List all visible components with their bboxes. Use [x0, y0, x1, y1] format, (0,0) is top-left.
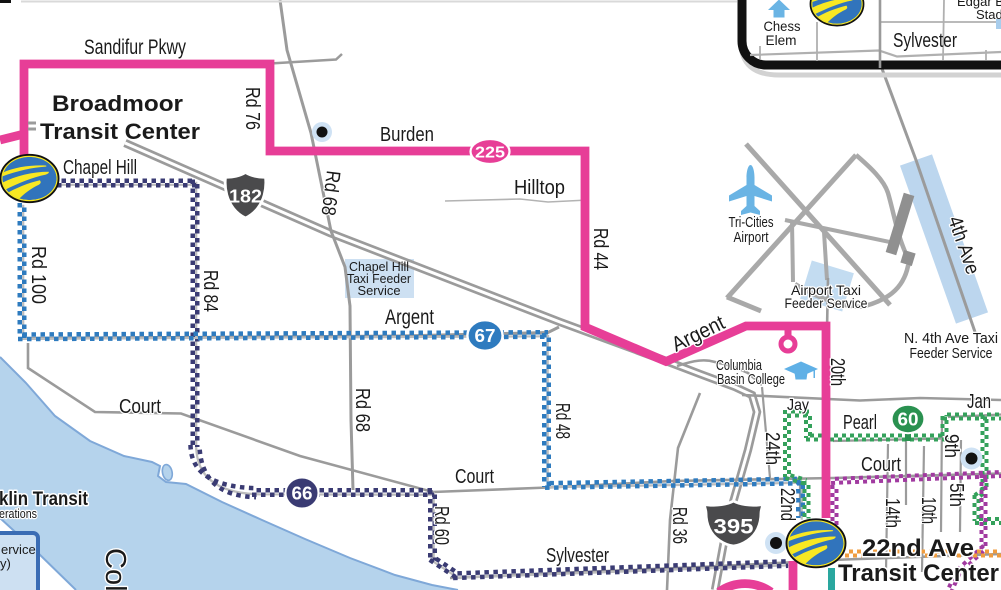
svg-text:Argent: Argent [385, 306, 434, 329]
svg-text:erations: erations [0, 506, 37, 521]
svg-text:Elem: Elem [766, 32, 797, 48]
svg-text:20th: 20th [826, 358, 848, 386]
svg-text:Burden: Burden [380, 124, 434, 146]
svg-text:22nd: 22nd [776, 488, 798, 521]
svg-text:Court: Court [119, 396, 161, 418]
svg-text:67: 67 [475, 326, 496, 346]
svg-text:Rd 76: Rd 76 [241, 87, 263, 130]
svg-text:225: 225 [475, 145, 505, 162]
svg-text:66: 66 [292, 484, 313, 504]
svg-text:Basin College: Basin College [717, 371, 785, 388]
svg-text:Broadmoor: Broadmoor [52, 91, 183, 116]
svg-text:Rd 44: Rd 44 [589, 228, 611, 270]
svg-text:y): y) [0, 556, 11, 571]
svg-text:Transit Center: Transit Center [838, 560, 999, 587]
svg-text:Transit Center: Transit Center [40, 119, 200, 144]
svg-text:5th: 5th [945, 483, 967, 507]
svg-text:Rd 68: Rd 68 [351, 388, 373, 432]
svg-text:Rd 60: Rd 60 [430, 506, 452, 545]
svg-text:Feeder Service: Feeder Service [785, 295, 868, 311]
svg-text:ervice: ervice [1, 542, 36, 557]
svg-text:Jay: Jay [787, 397, 809, 414]
svg-text:9th: 9th [940, 434, 962, 458]
svg-text:Columbia: Columbia [99, 548, 131, 590]
svg-text:Court: Court [455, 466, 494, 488]
svg-text:60: 60 [898, 410, 919, 430]
svg-text:Jan: Jan [967, 391, 991, 413]
svg-text:182: 182 [229, 187, 262, 207]
svg-text:22nd Ave: 22nd Ave [862, 535, 974, 562]
svg-text:Sylvester: Sylvester [893, 30, 957, 52]
svg-text:Rd 84: Rd 84 [199, 270, 221, 312]
svg-text:10th: 10th [917, 497, 939, 524]
svg-text:Sandifur Pkwy: Sandifur Pkwy [84, 36, 186, 59]
svg-text:Chapel Hill: Chapel Hill [63, 157, 137, 179]
svg-text:Rd 36: Rd 36 [668, 507, 690, 544]
svg-text:Rd 48: Rd 48 [551, 403, 573, 439]
svg-text:Airport: Airport [734, 229, 770, 246]
svg-text:24th: 24th [761, 432, 783, 465]
svg-text:Sylvester: Sylvester [546, 545, 609, 567]
svg-text:14th: 14th [881, 498, 903, 528]
svg-text:Stadi: Stadi [976, 7, 1001, 22]
svg-text:Rd 100: Rd 100 [27, 246, 49, 304]
svg-text:Service: Service [358, 283, 401, 298]
svg-text:Feeder Service: Feeder Service [910, 345, 993, 362]
svg-text:Pearl: Pearl [843, 412, 877, 434]
svg-text:395: 395 [714, 516, 754, 539]
svg-text:Hilltop: Hilltop [514, 177, 565, 199]
svg-text:Court: Court [861, 454, 901, 476]
